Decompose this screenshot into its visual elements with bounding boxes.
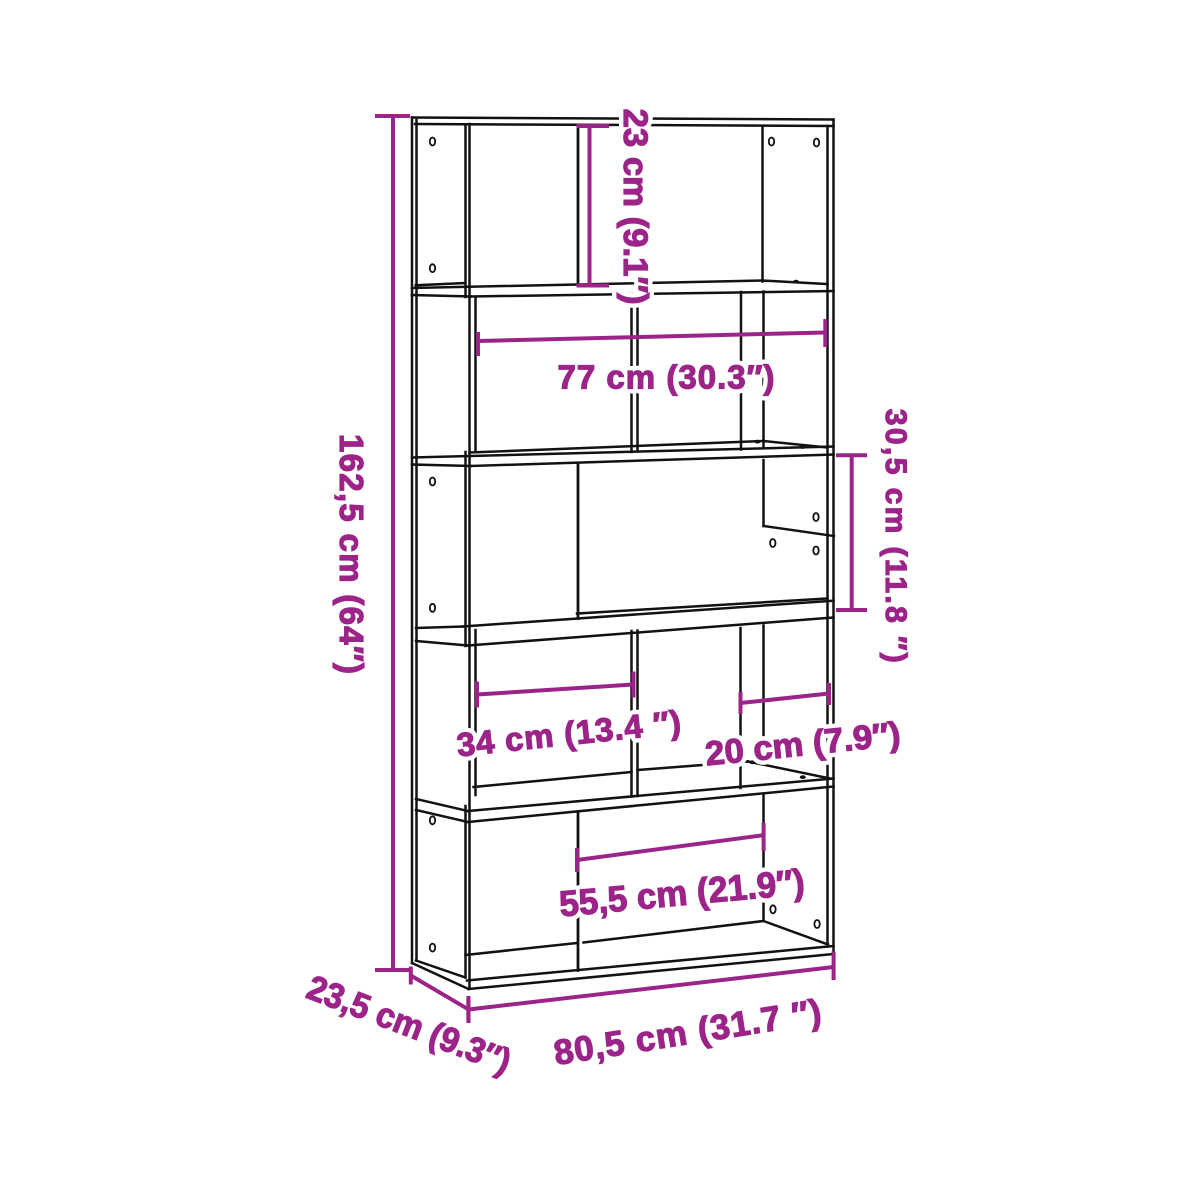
svg-text:30,5 cm (11.8 ″): 30,5 cm (11.8 ″) xyxy=(879,409,912,663)
svg-text:77 cm (30.3″): 77 cm (30.3″) xyxy=(558,359,775,396)
svg-text:162,5 cm (64″): 162,5 cm (64″) xyxy=(333,434,370,674)
svg-text:23 cm (9.1″): 23 cm (9.1″) xyxy=(616,109,654,305)
